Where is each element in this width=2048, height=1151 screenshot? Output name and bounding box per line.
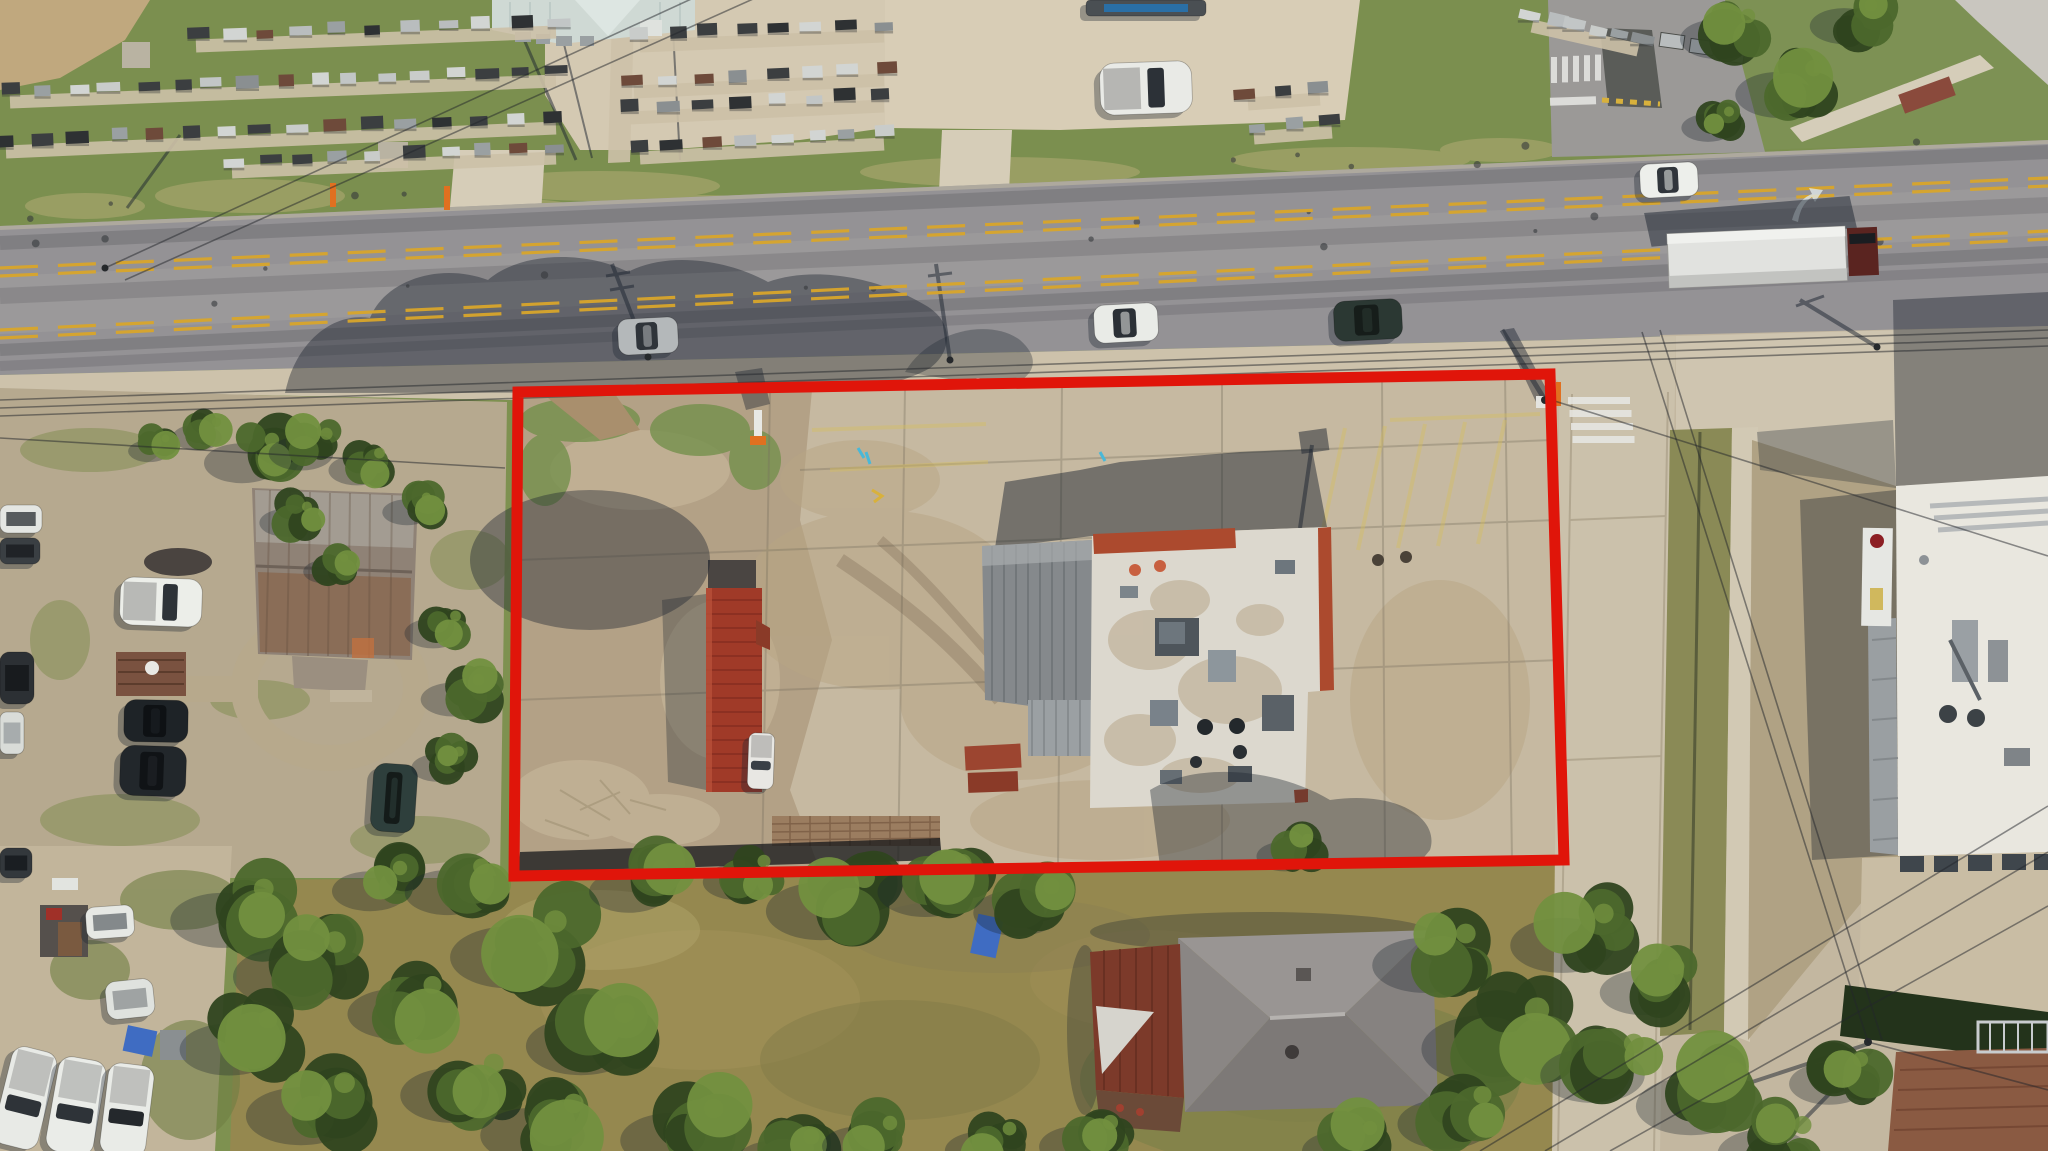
white-pickup-north-lot-glass bbox=[1147, 68, 1165, 108]
monument bbox=[442, 146, 460, 156]
monument-shadow bbox=[738, 34, 758, 37]
tree-canopy bbox=[1331, 1097, 1385, 1151]
monument-shadow bbox=[200, 87, 221, 90]
monument bbox=[278, 74, 294, 86]
monument-shadow bbox=[410, 80, 430, 83]
monument bbox=[547, 18, 570, 27]
monument bbox=[543, 111, 562, 123]
dark-teal-sedan-neighbor bbox=[363, 762, 418, 838]
monument bbox=[509, 143, 527, 154]
road-speck bbox=[1474, 161, 1481, 168]
monument-shadow bbox=[800, 31, 822, 34]
monument bbox=[1275, 85, 1291, 96]
monument bbox=[292, 154, 312, 164]
monument bbox=[112, 127, 128, 139]
monument bbox=[545, 144, 564, 153]
monument-row-strip bbox=[1248, 99, 1320, 104]
monument bbox=[621, 75, 643, 86]
monument bbox=[31, 133, 53, 146]
tree-highlight bbox=[1724, 1062, 1745, 1083]
monument bbox=[507, 113, 525, 125]
road-speck bbox=[1590, 212, 1598, 220]
dark-truck-top-left-corner-top bbox=[5, 856, 27, 871]
road-speck bbox=[1913, 138, 1920, 145]
tree-canopy bbox=[1703, 2, 1745, 44]
tree-canopy bbox=[286, 494, 305, 513]
monument bbox=[1249, 124, 1265, 134]
monument bbox=[692, 99, 714, 109]
tree-highlight bbox=[212, 418, 221, 427]
tree-highlight bbox=[1302, 834, 1313, 845]
road-speck bbox=[263, 266, 267, 270]
monument bbox=[187, 27, 210, 39]
tree-highlight bbox=[1668, 958, 1684, 974]
tree-canopy bbox=[236, 422, 266, 452]
white-pickup-north-lot-bed bbox=[1103, 67, 1141, 110]
tree-canopy bbox=[239, 892, 285, 938]
monument-shadow bbox=[878, 73, 898, 76]
crosswalk-bar bbox=[1595, 55, 1601, 81]
monument bbox=[871, 88, 890, 100]
monument bbox=[183, 125, 201, 138]
monument bbox=[836, 63, 858, 75]
monument bbox=[695, 74, 714, 84]
monument-shadow bbox=[293, 164, 313, 167]
tree-highlight bbox=[1043, 878, 1060, 895]
monument-shadow bbox=[692, 109, 714, 112]
monument bbox=[1307, 81, 1328, 94]
monument bbox=[361, 116, 384, 130]
monument-shadow bbox=[32, 146, 54, 149]
road-speck bbox=[406, 284, 410, 288]
monument-shadow bbox=[658, 85, 677, 88]
tree-highlight bbox=[1594, 904, 1614, 924]
monument-shadow bbox=[248, 133, 271, 136]
tree-highlight bbox=[1474, 1086, 1492, 1104]
tree-canopy bbox=[1534, 892, 1596, 954]
monument-shadow bbox=[66, 144, 89, 147]
tree-canopy bbox=[285, 413, 321, 449]
tree-highlight bbox=[454, 747, 464, 757]
tree-highlight bbox=[254, 879, 274, 899]
monument-shadow bbox=[0, 147, 14, 150]
monument bbox=[835, 20, 857, 31]
tree-canopy bbox=[281, 1070, 332, 1121]
black-suv-neighbor-1 bbox=[118, 699, 189, 747]
monument-shadow bbox=[508, 125, 525, 128]
monument-shadow bbox=[871, 100, 889, 103]
yard-pad-1 bbox=[122, 42, 150, 68]
monument-shadow bbox=[670, 38, 687, 41]
tree-highlight bbox=[614, 1002, 635, 1023]
white-truck-inside-parcel bbox=[741, 732, 775, 794]
monument bbox=[2, 82, 21, 94]
monument bbox=[511, 15, 533, 28]
monument-shadow bbox=[697, 35, 717, 38]
monument bbox=[34, 85, 51, 96]
monument bbox=[767, 23, 788, 33]
crosswalk-bar bbox=[1573, 56, 1579, 82]
monument bbox=[875, 22, 894, 31]
tree-highlight bbox=[544, 910, 566, 932]
monument-shadow bbox=[1518, 20, 1539, 23]
monument bbox=[175, 79, 192, 90]
manhole-2 bbox=[1400, 551, 1412, 563]
tree-highlight bbox=[1525, 997, 1549, 1021]
monument-shadow bbox=[657, 112, 680, 115]
tree-highlight bbox=[803, 1128, 819, 1144]
monument bbox=[810, 130, 826, 141]
monument bbox=[340, 73, 356, 85]
monument bbox=[474, 142, 491, 155]
monument bbox=[0, 135, 14, 147]
tree-canopy bbox=[395, 988, 460, 1053]
monument bbox=[327, 21, 345, 33]
white-trailer-left-edge-top bbox=[4, 723, 21, 744]
monument bbox=[312, 72, 329, 85]
monument-shadow bbox=[1286, 129, 1303, 132]
monument bbox=[1233, 89, 1255, 101]
tree-canopy bbox=[335, 550, 360, 575]
monument-shadow bbox=[807, 104, 823, 107]
white-pickup-neighbor-bed bbox=[123, 581, 157, 621]
monument-shadow bbox=[312, 85, 329, 88]
tree-highlight bbox=[704, 1099, 724, 1119]
tree-highlight bbox=[883, 1116, 897, 1130]
monument bbox=[138, 82, 160, 92]
monument bbox=[697, 23, 717, 36]
tree-highlight bbox=[334, 1072, 355, 1093]
road-speck bbox=[1320, 243, 1328, 251]
white-pickup-neighbor bbox=[113, 576, 203, 632]
monument-shadow bbox=[835, 30, 857, 32]
chimney bbox=[1296, 968, 1311, 981]
monument-shadow bbox=[328, 33, 346, 36]
monument-shadow bbox=[834, 100, 856, 103]
white-camper-shell-top bbox=[93, 913, 128, 931]
crosswalk-bar bbox=[1571, 423, 1633, 430]
monument bbox=[70, 84, 89, 94]
tree-highlight bbox=[472, 674, 484, 686]
black-suv-neighbor-2-roof bbox=[147, 756, 157, 786]
monument bbox=[620, 99, 638, 112]
monument-shadow bbox=[475, 155, 491, 158]
monument-shadow bbox=[545, 73, 568, 76]
monument-shadow bbox=[34, 96, 50, 99]
parcel-tree-shadow-blob bbox=[470, 490, 710, 630]
road-speck bbox=[27, 215, 34, 222]
monument-shadow bbox=[146, 140, 163, 143]
monument-shadow bbox=[432, 127, 451, 130]
tree-canopy bbox=[1773, 48, 1833, 108]
monument bbox=[364, 25, 380, 35]
road-speck bbox=[101, 235, 108, 242]
monument bbox=[806, 95, 822, 104]
monument bbox=[96, 82, 120, 92]
tree-highlight bbox=[484, 1054, 504, 1074]
monument-shadow bbox=[769, 104, 786, 107]
tree-highlight bbox=[374, 448, 385, 459]
monument-shadow bbox=[97, 91, 121, 94]
monument-shadow bbox=[660, 150, 683, 153]
monument-shadow bbox=[183, 138, 200, 141]
monument-shadow bbox=[1308, 93, 1328, 96]
monument-shadow bbox=[803, 78, 823, 81]
white-suv-on-road bbox=[1087, 302, 1159, 349]
aerial-photo bbox=[0, 0, 2048, 1151]
monument-shadow bbox=[622, 85, 643, 88]
monument-shadow bbox=[1319, 125, 1340, 128]
monument-shadow bbox=[631, 152, 648, 155]
road-speck bbox=[1295, 152, 1300, 157]
monument bbox=[256, 30, 273, 39]
monument bbox=[799, 22, 821, 32]
monument-shadow bbox=[476, 79, 500, 82]
monument-shadow bbox=[729, 83, 747, 86]
road-speck bbox=[351, 192, 359, 200]
debris-pile bbox=[144, 548, 212, 576]
monument-shadow bbox=[443, 156, 461, 159]
tree-highlight bbox=[1624, 1034, 1644, 1054]
monument-shadow bbox=[875, 31, 893, 34]
monument bbox=[802, 65, 823, 78]
equipment-trailer-north bbox=[1080, 0, 1206, 21]
monument-shadow bbox=[471, 29, 490, 32]
monument bbox=[400, 20, 420, 32]
monument bbox=[223, 28, 247, 41]
tree-canopy bbox=[1756, 1103, 1796, 1143]
monument bbox=[658, 76, 677, 85]
monument bbox=[833, 88, 855, 101]
road-speck bbox=[402, 191, 407, 196]
monument-shadow bbox=[365, 35, 380, 38]
monument-shadow bbox=[509, 153, 527, 156]
monument-shadow bbox=[379, 82, 397, 85]
road-speck bbox=[1533, 229, 1537, 233]
monument-shadow bbox=[1562, 29, 1584, 32]
tree-canopy bbox=[437, 745, 458, 766]
monument bbox=[223, 158, 244, 168]
monument-shadow bbox=[548, 27, 571, 30]
black-suv-neighbor-2 bbox=[113, 745, 187, 802]
road-speck bbox=[804, 286, 808, 290]
monument-shadow bbox=[1234, 99, 1255, 102]
monument bbox=[471, 16, 490, 29]
monument-shadow bbox=[279, 86, 294, 89]
monument-shadow bbox=[401, 32, 420, 35]
monument bbox=[200, 77, 222, 87]
monument-shadow bbox=[447, 77, 465, 80]
crosswalk-bar bbox=[1584, 55, 1590, 81]
white-trailer-left-edge bbox=[0, 712, 24, 759]
road-speck bbox=[1521, 142, 1529, 150]
monument-shadow bbox=[1589, 36, 1606, 39]
monument-shadow bbox=[695, 83, 714, 86]
dark-pickup-left-edge-top bbox=[5, 665, 29, 691]
crosswalk-bar bbox=[1551, 57, 1557, 83]
tree-highlight bbox=[424, 976, 442, 994]
white-utility-trailer-top bbox=[112, 988, 147, 1010]
monument-shadow bbox=[772, 143, 794, 146]
silver-sedan-on-road-roof bbox=[643, 325, 653, 347]
aerial-photo-canvas bbox=[0, 0, 2048, 1151]
roof-vent bbox=[1285, 1045, 1299, 1059]
monument-shadow bbox=[139, 91, 160, 94]
monument bbox=[771, 134, 794, 144]
monument-shadow bbox=[439, 28, 458, 31]
monument bbox=[657, 101, 680, 113]
monument-shadow bbox=[361, 129, 383, 132]
monument bbox=[728, 70, 747, 83]
white-truck-inside-parcel-bed bbox=[751, 735, 773, 758]
tree-highlight bbox=[450, 611, 461, 622]
monument-shadow bbox=[729, 109, 751, 112]
monument-shadow bbox=[1610, 38, 1627, 41]
monument-shadow bbox=[257, 39, 274, 42]
tree-highlight bbox=[422, 493, 431, 502]
dark-green-sedan-on-road-roof bbox=[1362, 308, 1373, 332]
monument-shadow bbox=[224, 40, 248, 43]
road-speck bbox=[109, 201, 113, 205]
tree-highlight bbox=[1853, 1052, 1868, 1067]
monument-shadow bbox=[112, 139, 127, 142]
monument bbox=[260, 154, 282, 163]
monument bbox=[737, 23, 757, 34]
building-shadow-ne-corner bbox=[1893, 292, 2048, 486]
monument bbox=[327, 150, 347, 161]
white-car-on-road-east-roof bbox=[1664, 170, 1673, 191]
monument-shadow bbox=[1276, 96, 1292, 99]
truck-logo bbox=[1870, 534, 1884, 548]
monument bbox=[767, 68, 789, 79]
white-pickup-bottom-3-bed bbox=[109, 1066, 150, 1107]
monument bbox=[248, 124, 271, 134]
monument-shadow bbox=[324, 131, 347, 134]
white-box-truck-left-edge bbox=[0, 505, 42, 538]
rusty-container bbox=[116, 652, 186, 696]
monument bbox=[145, 127, 163, 140]
monument bbox=[838, 129, 855, 139]
monument-shadow bbox=[218, 136, 236, 139]
tree-highlight bbox=[1741, 9, 1755, 23]
tree-highlight bbox=[393, 861, 407, 875]
road-speck bbox=[1231, 157, 1236, 162]
tree-highlight bbox=[324, 931, 346, 953]
monument-shadow bbox=[176, 90, 192, 93]
monument bbox=[734, 134, 756, 146]
monument-shadow bbox=[403, 158, 425, 161]
white-box-truck-left-edge-top bbox=[6, 512, 35, 526]
monument bbox=[875, 124, 895, 136]
monument-shadow bbox=[837, 74, 859, 77]
tree-canopy bbox=[360, 459, 389, 488]
dark-green-sedan-on-road bbox=[1327, 298, 1403, 347]
monument-shadow bbox=[236, 88, 259, 91]
road-speck bbox=[1088, 236, 1093, 241]
monument bbox=[877, 61, 897, 74]
monument bbox=[323, 119, 346, 132]
road-speck bbox=[1349, 164, 1355, 170]
tree-highlight bbox=[564, 1094, 584, 1114]
tree-highlight bbox=[302, 502, 312, 512]
tree-highlight bbox=[162, 434, 170, 442]
tree-highlight bbox=[473, 858, 489, 874]
monument bbox=[1286, 117, 1304, 130]
crosswalk-bar bbox=[1562, 56, 1568, 82]
monument-shadow bbox=[512, 28, 533, 31]
monument-shadow bbox=[224, 168, 245, 171]
white-pickup-neighbor-glass bbox=[162, 584, 178, 621]
monument bbox=[235, 75, 259, 89]
monument bbox=[217, 126, 235, 136]
dark-pickup-left-edge bbox=[0, 652, 34, 709]
monument-shadow bbox=[768, 32, 789, 35]
monument-shadow bbox=[767, 79, 789, 82]
monument-shadow bbox=[838, 139, 854, 142]
monument-shadow bbox=[544, 123, 562, 126]
dark-truck-left-edge-top bbox=[6, 545, 34, 558]
manhole-1 bbox=[1372, 554, 1384, 566]
monument-shadow bbox=[260, 163, 282, 166]
road-speck bbox=[32, 239, 40, 247]
monument bbox=[289, 26, 312, 36]
white-pickup-north-lot bbox=[1093, 60, 1193, 120]
monument bbox=[544, 65, 567, 74]
monument bbox=[475, 68, 499, 79]
tree-highlight bbox=[1724, 107, 1734, 117]
tree-highlight bbox=[340, 553, 349, 562]
monument-shadow bbox=[290, 35, 313, 38]
monument bbox=[1319, 114, 1341, 126]
monument-row-strip bbox=[1254, 132, 1332, 138]
monument-shadow bbox=[621, 112, 639, 115]
tree-highlight bbox=[1794, 1116, 1812, 1134]
monument bbox=[378, 73, 396, 82]
monument-shadow bbox=[340, 84, 356, 87]
equipment-trailer-north-top bbox=[1104, 4, 1188, 12]
monument bbox=[439, 20, 458, 29]
tree-highlight bbox=[758, 855, 771, 868]
monument bbox=[702, 136, 722, 148]
monument-shadow bbox=[2, 94, 20, 97]
monument-shadow bbox=[1630, 44, 1653, 47]
white-suv-on-road-roof bbox=[1120, 311, 1130, 334]
box-truck bbox=[1861, 528, 1893, 627]
tree-highlight bbox=[259, 1010, 278, 1029]
tree-highlight bbox=[1003, 1122, 1017, 1136]
tree-highlight bbox=[1103, 1115, 1118, 1130]
road-speck bbox=[541, 271, 549, 279]
monument bbox=[432, 117, 452, 127]
monument bbox=[364, 151, 380, 162]
black-suv-neighbor-1-roof bbox=[151, 708, 160, 733]
white-pickup-bottom-2-bed bbox=[58, 1059, 102, 1103]
silver-sedan-on-road bbox=[611, 316, 679, 360]
monument bbox=[410, 70, 430, 80]
monument-shadow bbox=[630, 40, 648, 43]
monument bbox=[629, 27, 648, 40]
monument-shadow bbox=[71, 94, 90, 97]
white-truck-inside-parcel-glass bbox=[751, 761, 771, 771]
monument-shadow bbox=[187, 38, 209, 41]
tree-canopy bbox=[435, 620, 463, 648]
tree-canopy bbox=[1413, 912, 1456, 955]
monument-shadow bbox=[1249, 133, 1265, 136]
monument-shadow bbox=[703, 147, 722, 150]
monument-shadow bbox=[545, 153, 564, 156]
monument bbox=[659, 139, 682, 150]
road-speck bbox=[211, 301, 217, 307]
